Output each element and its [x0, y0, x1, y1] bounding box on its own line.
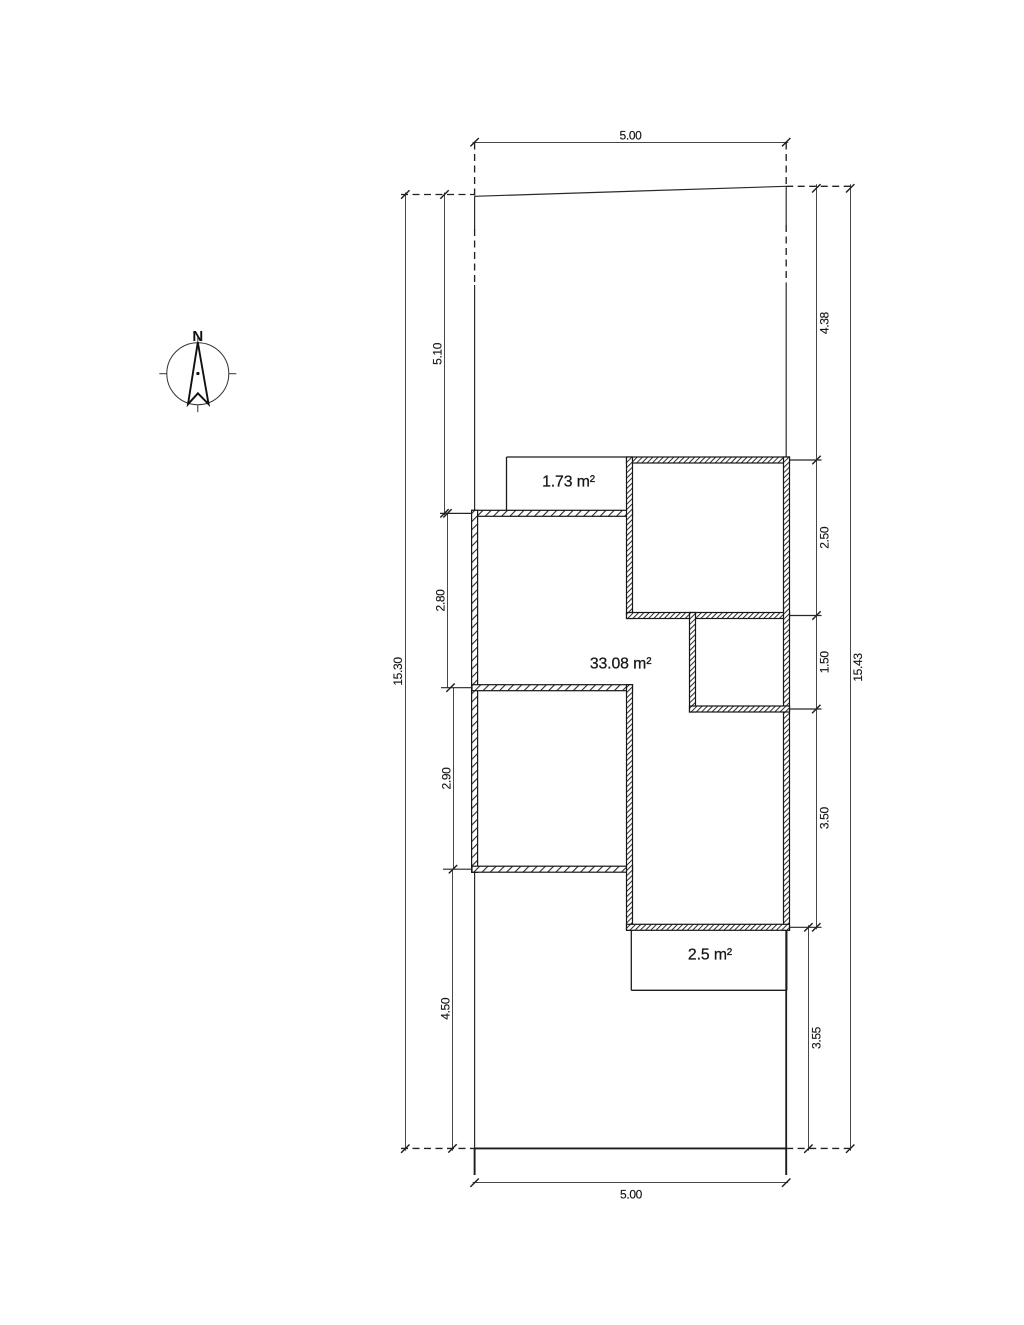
svg-text:4.38: 4.38 [817, 311, 831, 334]
svg-text:2.50: 2.50 [817, 526, 831, 549]
svg-text:5.10: 5.10 [430, 342, 444, 365]
svg-text:N: N [192, 328, 203, 345]
svg-text:2.80: 2.80 [433, 589, 447, 612]
svg-text:5.00: 5.00 [620, 1188, 643, 1202]
svg-text:3.50: 3.50 [817, 807, 831, 830]
svg-text:1.73 m²: 1.73 m² [542, 474, 595, 491]
svg-text:15.30: 15.30 [391, 657, 405, 686]
svg-text:4.50: 4.50 [438, 997, 452, 1020]
svg-text:2.90: 2.90 [439, 767, 453, 790]
svg-text:33.08 m²: 33.08 m² [590, 656, 652, 673]
svg-text:5.00: 5.00 [620, 128, 643, 142]
svg-text:2.5 m²: 2.5 m² [688, 947, 732, 964]
svg-text:3.55: 3.55 [809, 1026, 823, 1049]
svg-text:1.50: 1.50 [817, 651, 831, 674]
svg-text:15.43: 15.43 [851, 653, 865, 682]
